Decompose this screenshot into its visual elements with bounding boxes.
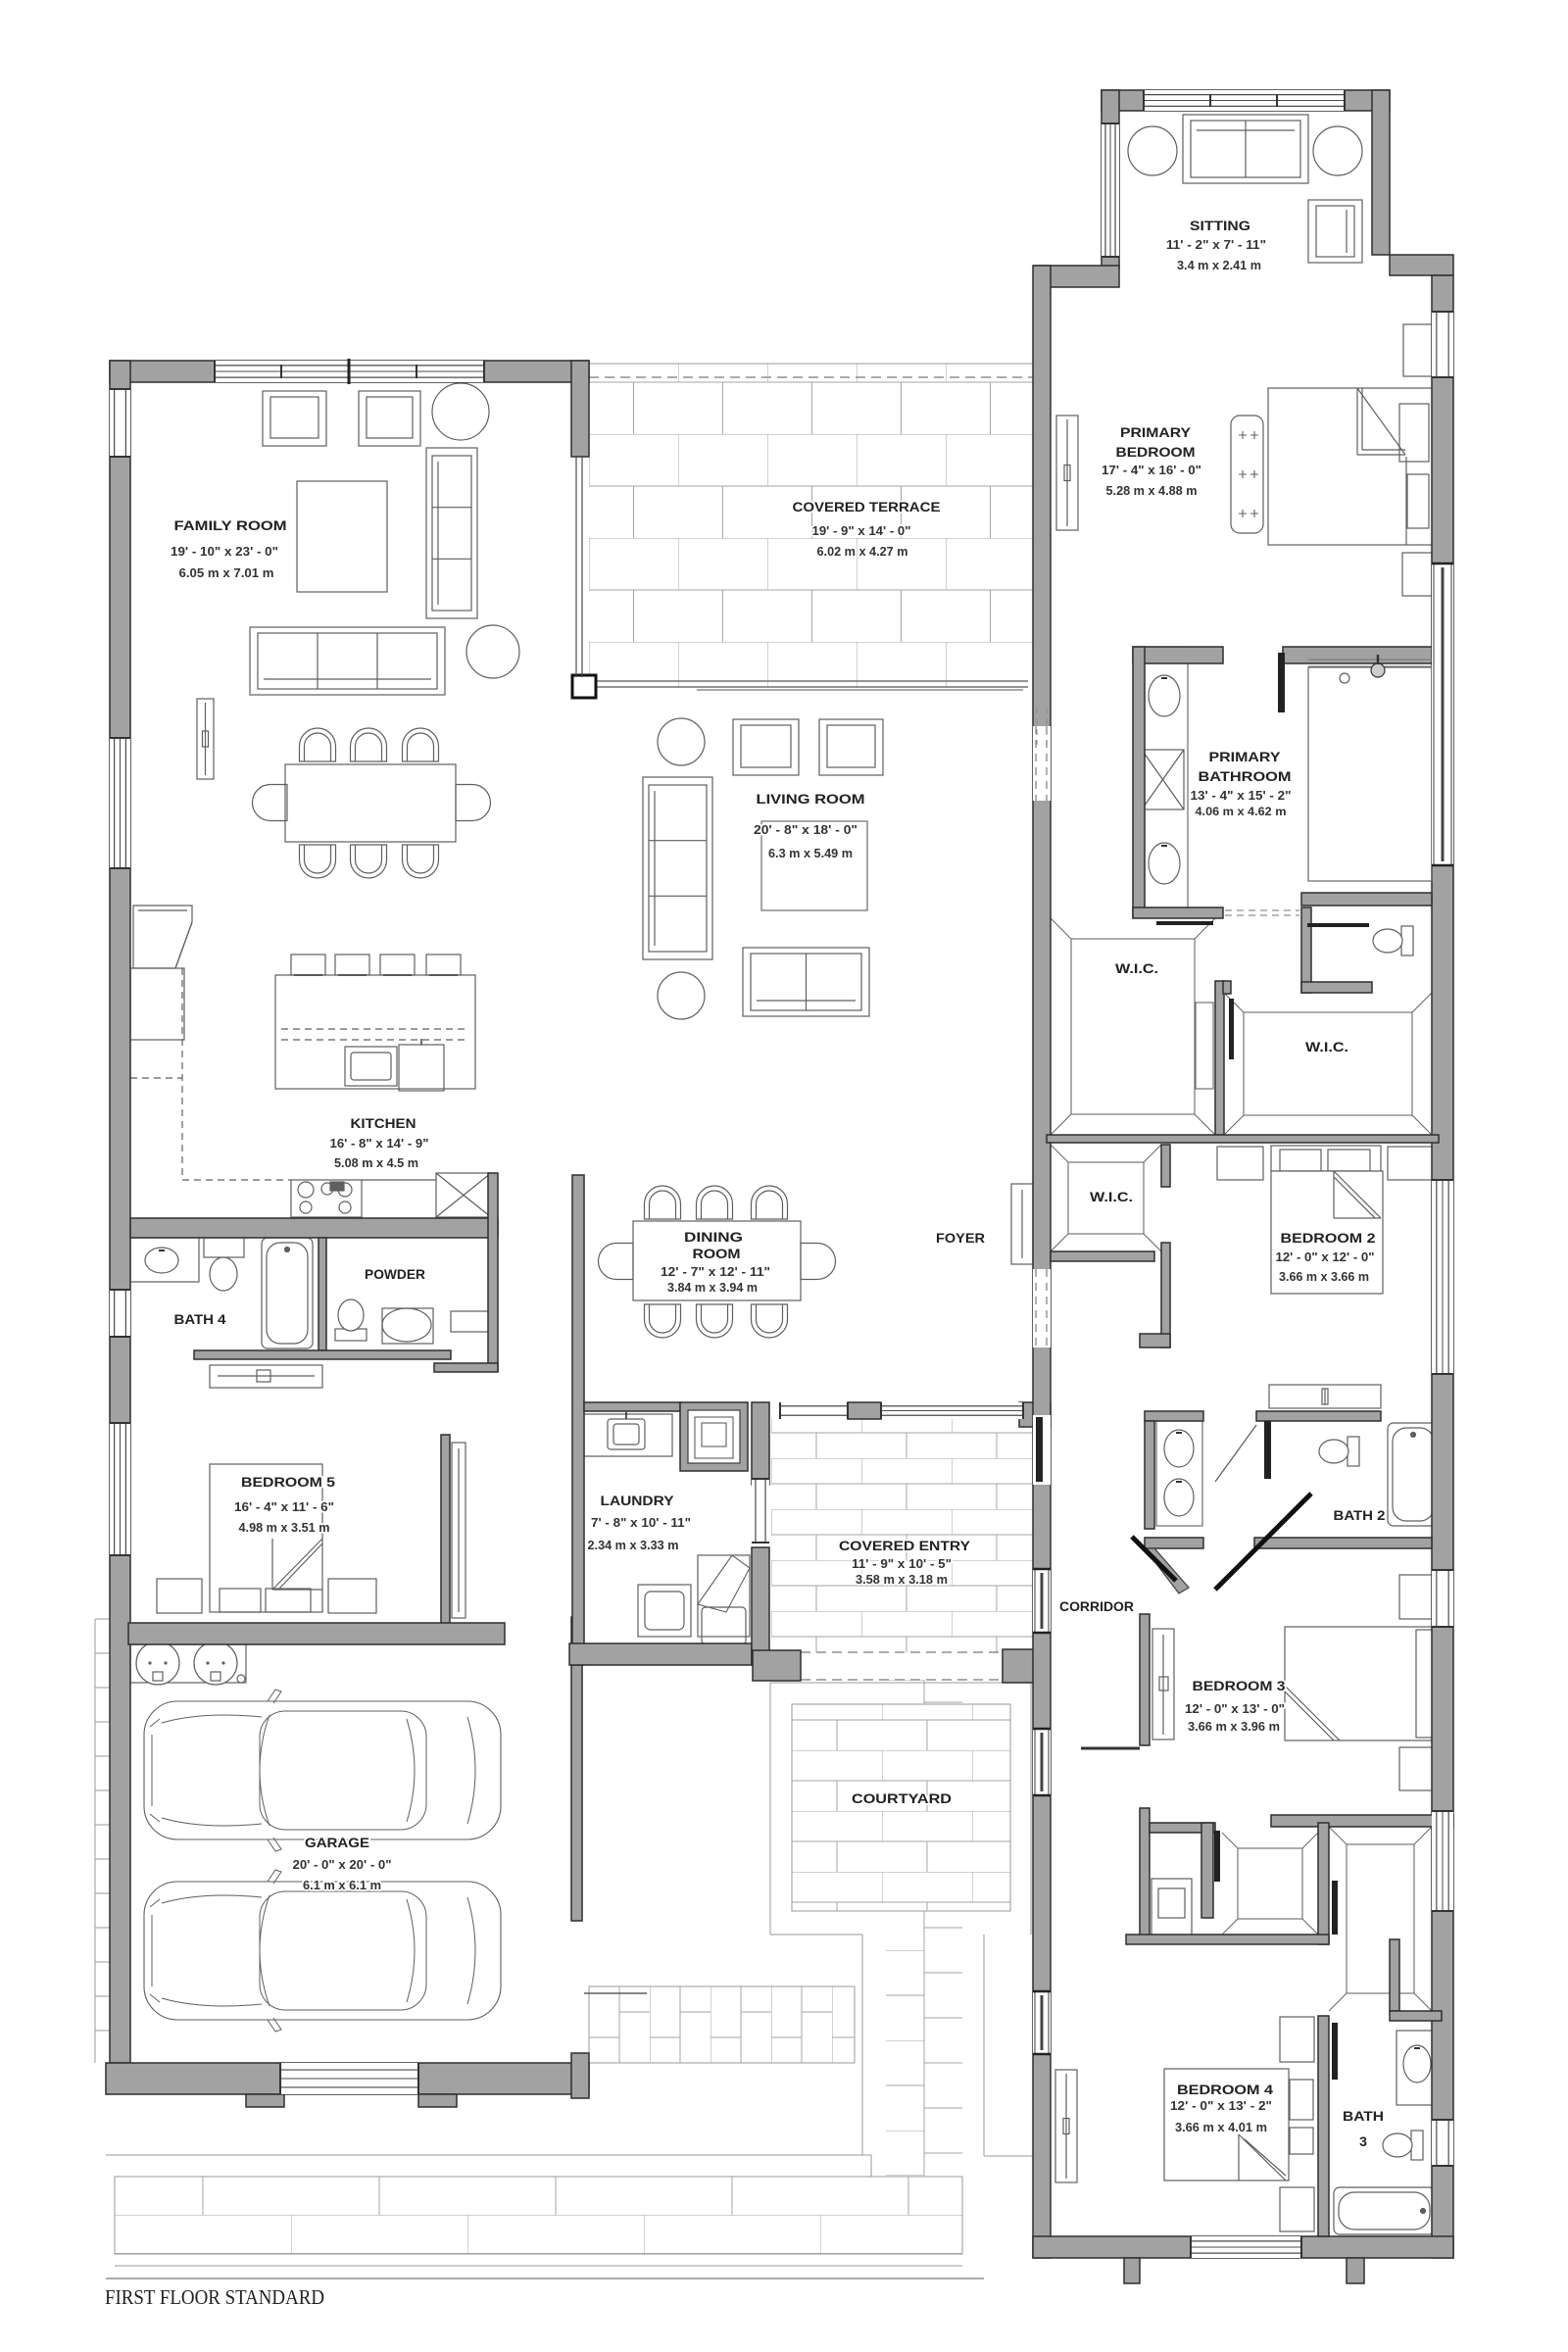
svg-text:3.66 m x 4.01 m: 3.66 m x 4.01 m (1175, 2121, 1267, 2134)
svg-text:20' - 8" x 18' - 0": 20' - 8" x 18' - 0" (754, 823, 857, 837)
svg-text:BEDROOM 5: BEDROOM 5 (241, 1474, 335, 1490)
svg-text:4.06 m x 4.62 m: 4.06 m x 4.62 m (1196, 805, 1287, 818)
svg-text:5.28 m x 4.88 m: 5.28 m x 4.88 m (1106, 484, 1198, 498)
svg-text:ROOM: ROOM (693, 1246, 741, 1261)
svg-text:11' - 9" x 10' - 5": 11' - 9" x 10' - 5" (852, 1557, 952, 1571)
svg-text:LIVING ROOM: LIVING ROOM (757, 791, 865, 807)
svg-text:6.1 m x 6.1 m: 6.1 m x 6.1 m (303, 1879, 381, 1892)
svg-text:CORRIDOR: CORRIDOR (1059, 1598, 1134, 1614)
svg-text:3.66 m x 3.96 m: 3.66 m x 3.96 m (1188, 1720, 1280, 1734)
svg-text:12' - 7" x 12' - 11": 12' - 7" x 12' - 11" (661, 1265, 770, 1279)
svg-text:POWDER: POWDER (365, 1266, 425, 1282)
svg-text:BATHROOM: BATHROOM (1199, 768, 1292, 784)
svg-text:FOYER: FOYER (936, 1230, 985, 1246)
svg-text:BATH 4: BATH 4 (174, 1311, 226, 1327)
svg-text:BEDROOM 2: BEDROOM 2 (1281, 1230, 1376, 1246)
svg-text:16' - 4" x 11' - 6": 16' - 4" x 11' - 6" (234, 1500, 334, 1514)
svg-text:12' - 0" x 13' - 2": 12' - 0" x 13' - 2" (1170, 2099, 1272, 2113)
svg-text:BEDROOM 3: BEDROOM 3 (1193, 1678, 1286, 1693)
svg-text:6.3 m x 5.49 m: 6.3 m x 5.49 m (768, 847, 853, 860)
svg-text:12' - 0" x 12' - 0": 12' - 0" x 12' - 0" (1276, 1250, 1375, 1264)
svg-text:11' - 2" x 7' - 11": 11' - 2" x 7' - 11" (1166, 238, 1266, 252)
svg-text:W.I.C.: W.I.C. (1090, 1189, 1133, 1204)
svg-text:FAMILY ROOM: FAMILY ROOM (174, 517, 287, 533)
svg-text:LAUNDRY: LAUNDRY (601, 1493, 675, 1508)
svg-text:5.08 m x 4.5 m: 5.08 m x 4.5 m (334, 1156, 418, 1170)
svg-text:3.84 m x 3.94 m: 3.84 m x 3.94 m (667, 1281, 758, 1295)
svg-text:19' - 9" x 14' - 0": 19' - 9" x 14' - 0" (812, 524, 911, 538)
svg-text:20' - 0" x 20' - 0": 20' - 0" x 20' - 0" (293, 1858, 392, 1872)
svg-text:DINING: DINING (684, 1229, 743, 1245)
svg-text:3.66 m x 3.66 m: 3.66 m x 3.66 m (1279, 1270, 1369, 1284)
svg-text:7' - 8" x 10' - 11": 7' - 8" x 10' - 11" (591, 1516, 691, 1530)
svg-text:COVERED ENTRY: COVERED ENTRY (839, 1538, 971, 1553)
svg-text:19' - 10" x 23' - 0": 19' - 10" x 23' - 0" (171, 545, 278, 559)
svg-text:6.02 m x 4.27 m: 6.02 m x 4.27 m (817, 545, 908, 559)
svg-text:BATH: BATH (1343, 2108, 1384, 2124)
svg-text:3.4 m x 2.41 m: 3.4 m x 2.41 m (1177, 259, 1261, 272)
svg-text:6.05 m x 7.01 m: 6.05 m x 7.01 m (179, 566, 274, 580)
svg-text:3.58 m x 3.18 m: 3.58 m x 3.18 m (856, 1573, 948, 1587)
svg-text:4.98 m x 3.51 m: 4.98 m x 3.51 m (239, 1521, 330, 1535)
svg-text:12' - 0" x 13' - 0": 12' - 0" x 13' - 0" (1185, 1702, 1285, 1716)
svg-text:SITTING: SITTING (1190, 218, 1250, 233)
svg-text:W.I.C.: W.I.C. (1305, 1039, 1348, 1054)
svg-text:16' - 8" x 14' - 9": 16' - 8" x 14' - 9" (330, 1137, 429, 1151)
svg-text:17' - 4" x 16' - 0": 17' - 4" x 16' - 0" (1102, 464, 1201, 477)
svg-text:GARAGE: GARAGE (305, 1835, 369, 1850)
svg-text:2.34 m x 3.33 m: 2.34 m x 3.33 m (588, 1539, 679, 1552)
svg-text:BEDROOM 4: BEDROOM 4 (1177, 2082, 1273, 2097)
svg-text:BEDROOM: BEDROOM (1116, 444, 1196, 460)
svg-text:FIRST FLOOR STANDARD: FIRST FLOOR STANDARD (105, 2285, 324, 2309)
svg-text:PRIMARY: PRIMARY (1120, 424, 1192, 440)
svg-text:COURTYARD: COURTYARD (852, 1790, 952, 1806)
svg-text:13' - 4" x 15' - 2": 13' - 4" x 15' - 2" (1191, 789, 1292, 803)
svg-text:3: 3 (1359, 2133, 1367, 2149)
svg-text:KITCHEN: KITCHEN (351, 1115, 416, 1131)
svg-text:PRIMARY: PRIMARY (1209, 749, 1282, 764)
svg-text:COVERED TERRACE: COVERED TERRACE (793, 499, 941, 514)
svg-text:BATH 2: BATH 2 (1334, 1507, 1386, 1523)
svg-text:W.I.C.: W.I.C. (1115, 960, 1158, 976)
